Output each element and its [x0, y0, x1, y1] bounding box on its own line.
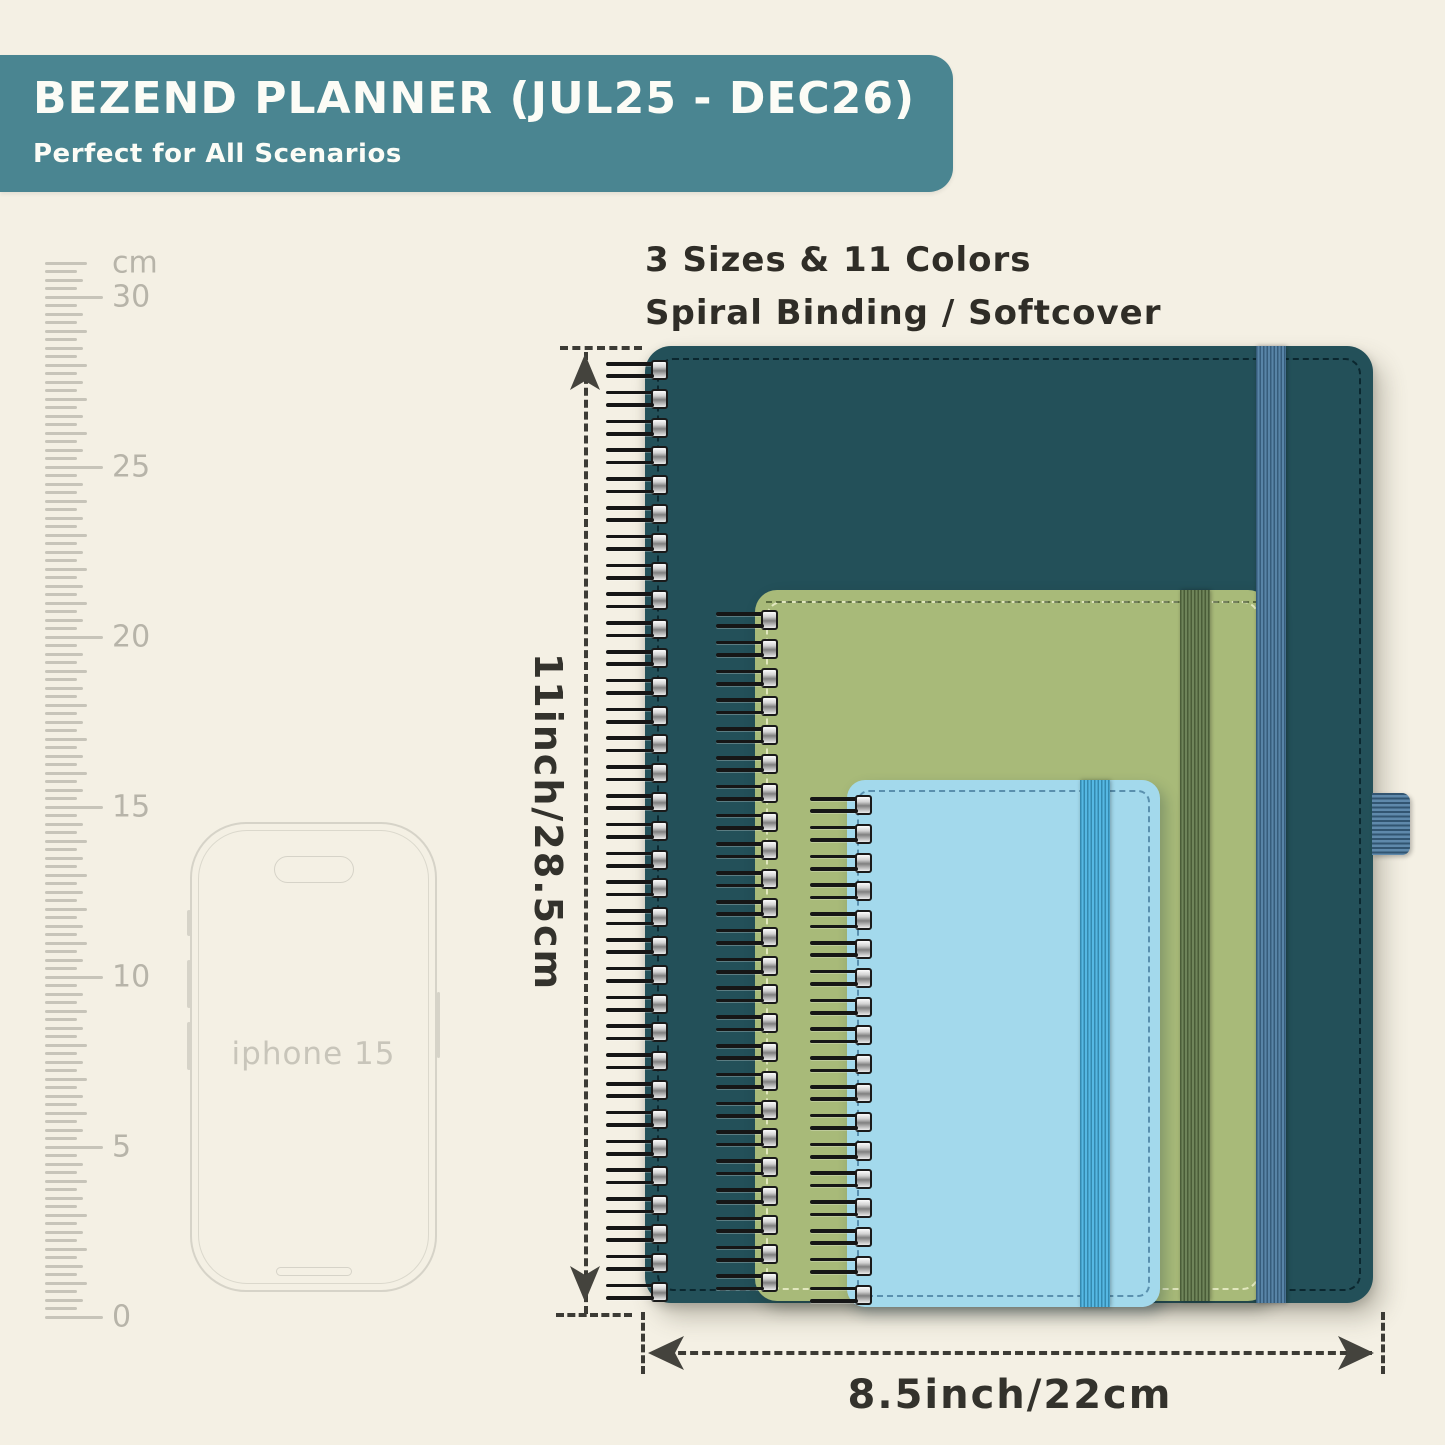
ruler-tick: [45, 1307, 77, 1310]
ruler-label: 15: [112, 790, 150, 825]
coil-clip: [761, 1157, 778, 1177]
spiral-coil: [716, 1130, 778, 1146]
coil-clip: [651, 965, 668, 985]
spiral-coil: [606, 736, 668, 752]
coil-clip: [855, 1198, 872, 1218]
coil-clip: [651, 648, 668, 668]
spiral-coil: [810, 855, 872, 871]
spiral-coil: [606, 1168, 668, 1184]
coil-clip: [651, 907, 668, 927]
coil-clip: [855, 939, 872, 959]
ruler-tick: [45, 1197, 83, 1200]
planner-small-elastic-band: [1080, 780, 1110, 1307]
coil-clip: [651, 1138, 668, 1158]
ruler-tick: [45, 772, 87, 775]
spiral-coil: [810, 1056, 872, 1072]
ruler-unit-label: cm: [112, 246, 158, 281]
ruler-tick: [45, 610, 77, 613]
ruler-tick: [45, 882, 77, 885]
coil-clip: [761, 696, 778, 716]
ruler-tick: [45, 500, 87, 503]
ruler-tick: [45, 296, 103, 299]
spiral-coil: [716, 1274, 778, 1290]
spiral-coil: [606, 852, 668, 868]
ruler-tick: [45, 1239, 77, 1242]
ruler-label: 20: [112, 620, 150, 655]
spiral-coil: [606, 909, 668, 925]
ruler-tick: [45, 1129, 83, 1132]
coil-clip: [761, 610, 778, 630]
spiral-coil: [716, 612, 778, 628]
ruler-tick: [45, 1231, 83, 1234]
spiral-coil: [606, 1255, 668, 1271]
ruler-tick: [45, 789, 83, 792]
height-dim-terminator-top: [560, 346, 642, 350]
width-dimension-line: [654, 1351, 1372, 1355]
spiral-coil: [810, 1114, 872, 1130]
coil-clip: [761, 898, 778, 918]
volume-down-button: [187, 1022, 191, 1070]
spiral-coil: [716, 1159, 778, 1175]
ruler-tick: [45, 321, 77, 324]
spiral-coil: [810, 941, 872, 957]
spiral-coil: [716, 814, 778, 830]
ruler-tick: [45, 491, 77, 494]
ruler-tick: [45, 823, 83, 826]
width-dim-terminator-right: [1381, 1312, 1385, 1374]
coil-clip: [761, 927, 778, 947]
ruler-tick: [45, 466, 103, 469]
coil-clip: [855, 1227, 872, 1247]
spiral-coil: [606, 420, 668, 436]
coil-clip: [651, 1195, 668, 1215]
ruler-tick: [45, 1265, 83, 1268]
ruler-tick: [45, 1273, 77, 1276]
spiral-coil: [716, 986, 778, 1002]
coil-clip: [761, 1215, 778, 1235]
ruler-tick: [45, 1282, 87, 1285]
spiral-coil: [716, 929, 778, 945]
arrow-right-icon: [1338, 1336, 1374, 1370]
coil-clip: [855, 968, 872, 988]
ruler-tick: [45, 908, 87, 911]
ruler-tick: [45, 780, 77, 783]
ruler-tick: [45, 474, 77, 477]
mute-switch: [187, 910, 191, 936]
spiral-coil: [810, 1143, 872, 1159]
coil-clip: [855, 795, 872, 815]
coil-clip: [855, 1141, 872, 1161]
ruler-tick: [45, 1069, 77, 1072]
ruler-tick: [45, 678, 77, 681]
ruler-tick: [45, 950, 77, 953]
ruler-tick: [45, 1061, 83, 1064]
ruler-tick: [45, 704, 87, 707]
spiral-coil: [716, 1102, 778, 1118]
spiral-coil: [716, 1246, 778, 1262]
ruler-tick: [45, 330, 87, 333]
ruler-tick: [45, 653, 83, 656]
ruler-label: 25: [112, 450, 150, 485]
coil-clip: [651, 994, 668, 1014]
coil-clip: [651, 1051, 668, 1071]
coil-clip: [651, 446, 668, 466]
coil-clip: [855, 1054, 872, 1074]
ruler-tick: [45, 1112, 87, 1115]
ruler-tick: [45, 1222, 77, 1225]
ruler-tick: [45, 585, 83, 588]
ruler-label: 10: [112, 960, 150, 995]
spiral-coil: [606, 679, 668, 695]
ruler-tick: [45, 525, 77, 528]
ruler-tick: [45, 270, 77, 273]
ruler-tick: [45, 279, 83, 282]
ruler-tick: [45, 806, 103, 809]
spiral-coil: [606, 996, 668, 1012]
spiral-coil: [606, 880, 668, 896]
coil-clip: [651, 878, 668, 898]
coil-clip: [855, 1169, 872, 1189]
ruler-tick: [45, 262, 87, 265]
ruler-tick: [45, 1027, 83, 1030]
ruler-tick: [45, 814, 77, 817]
feature-binding: Spiral Binding / Softcover: [645, 293, 1161, 333]
spiral-coil: [606, 391, 668, 407]
product-infographic: BEZEND PLANNER (JUL25 - DEC26) Perfect f…: [0, 0, 1445, 1445]
ruler-tick: [45, 1095, 83, 1098]
coil-clip: [651, 360, 668, 380]
banner-subtitle: Perfect for All Scenarios: [33, 139, 402, 169]
spiral-coil: [606, 938, 668, 954]
spiral-coil: [716, 958, 778, 974]
coil-clip: [761, 956, 778, 976]
spiral-coil: [606, 794, 668, 810]
planner-small-cover: [847, 780, 1160, 1307]
ruler-tick: [45, 1290, 77, 1293]
coil-clip: [651, 734, 668, 754]
ruler-label: 5: [112, 1130, 131, 1165]
ruler-tick: [45, 848, 77, 851]
spiral-coil: [606, 1082, 668, 1098]
ruler-tick: [45, 1086, 77, 1089]
coil-clip: [855, 1256, 872, 1276]
ruler-tick: [45, 1154, 77, 1157]
coil-clip: [855, 997, 872, 1017]
ruler-tick: [45, 712, 77, 715]
spiral-coil: [606, 1111, 668, 1127]
spiral-coil: [810, 1258, 872, 1274]
height-dimension-label: 11inch/28.5cm: [526, 653, 570, 991]
ruler-tick: [45, 644, 77, 647]
spiral-coil: [606, 362, 668, 378]
ruler-tick: [45, 508, 77, 511]
coil-clip: [761, 725, 778, 745]
coil-clip: [855, 1285, 872, 1305]
spiral-coil: [716, 641, 778, 657]
ruler-tick: [45, 1010, 87, 1013]
coil-clip: [651, 706, 668, 726]
spiral-coil: [716, 698, 778, 714]
ruler-tick: [45, 432, 87, 435]
spiral-coil: [716, 1188, 778, 1204]
coil-clip: [651, 475, 668, 495]
ruler-tick: [45, 372, 77, 375]
ruler-tick: [45, 933, 77, 936]
width-dim-terminator-left: [641, 1312, 645, 1374]
feature-sizes-colors: 3 Sizes & 11 Colors: [645, 240, 1032, 280]
coil-clip: [651, 418, 668, 438]
coil-clip: [651, 821, 668, 841]
ruler-tick: [45, 916, 77, 919]
coil-clip: [761, 869, 778, 889]
spiral-coil: [810, 1171, 872, 1187]
spiral-coil: [606, 765, 668, 781]
spiral-coil: [716, 670, 778, 686]
ruler-tick: [45, 976, 103, 979]
coil-clip: [651, 1282, 668, 1302]
ruler-tick: [45, 619, 83, 622]
ruler-tick: [45, 1248, 87, 1251]
ruler-tick: [45, 755, 83, 758]
coil-clip: [855, 1112, 872, 1132]
ruler-tick: [45, 1188, 77, 1191]
ruler-tick: [45, 967, 77, 970]
ruler-tick: [45, 406, 77, 409]
spiral-coil: [606, 592, 668, 608]
ruler-tick: [45, 534, 87, 537]
ruler-tick: [45, 559, 77, 562]
coil-clip: [651, 504, 668, 524]
coil-clip: [651, 1080, 668, 1100]
coil-clip: [651, 1022, 668, 1042]
coil-clip: [761, 754, 778, 774]
coil-clip: [651, 763, 668, 783]
height-dim-terminator-bottom: [556, 1313, 632, 1317]
spiral-coil: [716, 785, 778, 801]
spiral-coil: [716, 1217, 778, 1233]
ruler-tick: [45, 984, 77, 987]
ruler-tick: [45, 746, 77, 749]
ruler-tick: [45, 551, 83, 554]
spiral-coil: [606, 967, 668, 983]
ruler-tick: [45, 738, 87, 741]
coil-clip: [855, 910, 872, 930]
ruler-tick: [45, 1137, 77, 1140]
ruler-tick: [45, 355, 77, 358]
spiral-coil: [810, 1200, 872, 1216]
volume-up-button: [187, 960, 191, 1008]
arrow-up-icon: [570, 354, 600, 390]
coil-clip: [761, 1100, 778, 1120]
spiral-coil: [810, 797, 872, 813]
ruler-tick: [45, 381, 83, 384]
ruler-tick: [45, 389, 77, 392]
ruler-tick: [45, 1171, 77, 1174]
ruler-tick: [45, 568, 87, 571]
iphone-outline: iphone 15: [190, 822, 437, 1292]
ruler-tick: [45, 627, 77, 630]
spiral-coil: [716, 871, 778, 887]
coil-clip: [761, 812, 778, 832]
coil-clip: [761, 1042, 778, 1062]
coil-clip: [761, 1013, 778, 1033]
ruler-tick: [45, 1180, 87, 1183]
spiral-coil: [716, 1044, 778, 1060]
ruler-tick: [45, 287, 77, 290]
spiral-coil: [606, 1226, 668, 1242]
ruler-tick: [45, 338, 77, 341]
spiral-coil: [606, 564, 668, 580]
coil-clip: [761, 1272, 778, 1292]
spiral-coil: [606, 1284, 668, 1300]
pen-loop: [1372, 793, 1410, 855]
spiral-coil: [810, 999, 872, 1015]
ruler-tick: [45, 449, 83, 452]
ruler-tick: [45, 865, 77, 868]
spiral-coil: [606, 448, 668, 464]
ruler-tick: [45, 1163, 83, 1166]
spiral-coil: [606, 1053, 668, 1069]
ruler-tick: [45, 993, 83, 996]
coil-clip: [651, 562, 668, 582]
ruler-tick: [45, 304, 77, 307]
ruler-tick: [45, 313, 83, 316]
ruler-tick: [45, 797, 77, 800]
spiral-coil: [716, 727, 778, 743]
coil-clip: [761, 1186, 778, 1206]
coil-clip: [651, 792, 668, 812]
ruler-tick: [45, 1214, 87, 1217]
ruler-tick: [45, 364, 87, 367]
ruler-label: 30: [112, 280, 150, 315]
coil-clip: [761, 668, 778, 688]
ruler-tick: [45, 857, 83, 860]
coil-clip: [651, 590, 668, 610]
coil-clip: [761, 1244, 778, 1264]
spiral-coil: [606, 506, 668, 522]
ruler-tick: [45, 840, 87, 843]
title-banner: BEZEND PLANNER (JUL25 - DEC26) Perfect f…: [0, 55, 953, 192]
height-dimension-line: [584, 352, 588, 1314]
ruler-tick: [45, 636, 103, 639]
coil-clip: [651, 936, 668, 956]
ruler-tick: [45, 687, 83, 690]
ruler-tick: [45, 831, 77, 834]
power-button: [437, 992, 441, 1058]
coil-clip: [855, 1025, 872, 1045]
ruler-tick: [45, 398, 87, 401]
spiral-coil: [810, 1229, 872, 1245]
width-dimension-label: 8.5inch/22cm: [848, 1372, 1173, 1418]
spiral-coil: [716, 842, 778, 858]
ruler-tick: [45, 763, 77, 766]
spiral-coil: [606, 1197, 668, 1213]
ruler-tick: [45, 1103, 77, 1106]
spiral-coil: [606, 477, 668, 493]
ruler-tick: [45, 891, 83, 894]
spiral-coil: [810, 883, 872, 899]
spiral-coil: [810, 826, 872, 842]
spiral-coil: [810, 1287, 872, 1303]
ruler-tick: [45, 593, 77, 596]
ruler-tick: [45, 670, 87, 673]
ruler-tick: [45, 661, 77, 664]
spiral-coil: [716, 1073, 778, 1089]
ruler-tick: [45, 721, 83, 724]
coil-clip: [651, 1224, 668, 1244]
coil-clip: [651, 1253, 668, 1273]
spiral-coil: [606, 1024, 668, 1040]
spiral-coil: [810, 1027, 872, 1043]
ruler-tick: [45, 1035, 77, 1038]
ruler-tick: [45, 1205, 77, 1208]
spiral-coil: [810, 1085, 872, 1101]
ruler-tick: [45, 874, 87, 877]
spiral-coil: [716, 1015, 778, 1031]
coil-clip: [855, 1083, 872, 1103]
coil-clip: [761, 984, 778, 1004]
coil-clip: [651, 1109, 668, 1129]
planner-large-elastic-band: [1256, 346, 1286, 1303]
ruler-tick: [45, 729, 77, 732]
ruler-tick: [45, 1078, 87, 1081]
coil-clip: [761, 639, 778, 659]
coil-clip: [855, 881, 872, 901]
coil-clip: [651, 1166, 668, 1186]
coil-clip: [651, 677, 668, 697]
coil-clip: [651, 389, 668, 409]
coil-clip: [761, 783, 778, 803]
ruler-tick: [45, 517, 83, 520]
ruler-tick: [45, 542, 77, 545]
ruler-tick: [45, 1018, 77, 1021]
ruler-tick: [45, 1044, 87, 1047]
ruler-tick: [45, 1316, 103, 1319]
dynamic-island: [274, 856, 354, 883]
ruler-tick: [45, 1256, 77, 1259]
ruler-tick: [45, 415, 83, 418]
ruler-tick: [45, 423, 77, 426]
ruler-tick: [45, 1299, 83, 1302]
spiral-coil: [606, 650, 668, 666]
coil-clip: [855, 824, 872, 844]
ruler-tick: [45, 440, 77, 443]
ruler-tick: [45, 959, 83, 962]
coil-clip: [761, 1071, 778, 1091]
ruler-tick: [45, 576, 77, 579]
spiral-coil: [716, 900, 778, 916]
coil-clip: [651, 850, 668, 870]
spiral-coil: [810, 912, 872, 928]
planner-medium-elastic-band: [1180, 590, 1210, 1301]
spiral-coil: [606, 708, 668, 724]
coil-clip: [855, 853, 872, 873]
ruler-tick: [45, 1120, 77, 1123]
iphone-label: iphone 15: [192, 1036, 435, 1072]
ruler-tick: [45, 1052, 77, 1055]
coil-clip: [761, 840, 778, 860]
ruler-tick: [45, 1146, 103, 1149]
spiral-coil: [716, 756, 778, 772]
speaker-slot: [276, 1267, 352, 1276]
ruler-tick: [45, 457, 77, 460]
coil-clip: [651, 619, 668, 639]
arrow-left-icon: [648, 1336, 684, 1370]
ruler-tick: [45, 695, 77, 698]
ruler-tick: [45, 925, 83, 928]
ruler-tick: [45, 1001, 77, 1004]
ruler-label: 0: [112, 1300, 131, 1335]
